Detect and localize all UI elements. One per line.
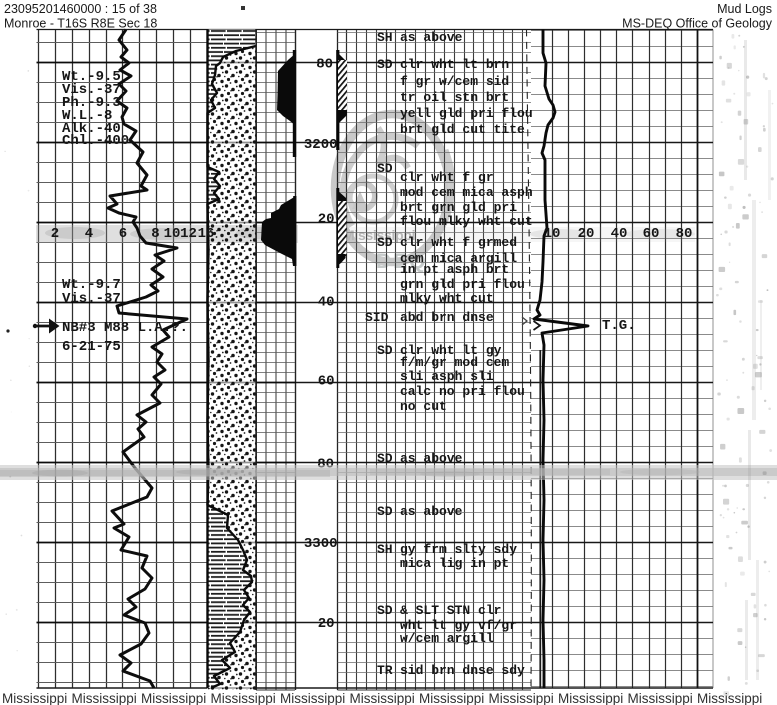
svg-text:& SLT STN clr: & SLT STN clr	[400, 603, 501, 618]
svg-text:Vis.-37: Vis.-37	[62, 291, 121, 307]
svg-text:no cut: no cut	[400, 399, 447, 414]
svg-text:SD: SD	[377, 504, 393, 519]
svg-text:T.G.: T.G.	[602, 318, 636, 334]
svg-text:20: 20	[318, 212, 335, 228]
svg-text:60: 60	[318, 374, 335, 390]
svg-text:6-21-75: 6-21-75	[62, 339, 121, 355]
svg-text:2: 2	[51, 226, 59, 242]
svg-text:80: 80	[676, 226, 693, 242]
svg-text:60: 60	[643, 226, 660, 242]
svg-text:brt grn gld pri: brt grn gld pri	[400, 200, 517, 215]
svg-text:mlky wht cut: mlky wht cut	[400, 291, 494, 306]
svg-text:SD: SD	[377, 343, 393, 358]
svg-text:Mississippi: Mississippi	[280, 691, 345, 705]
svg-text:SD: SD	[377, 451, 393, 466]
svg-text:calc no pri flou: calc no pri flou	[400, 384, 525, 399]
svg-text:Monroe - T16S R8E Sec 18: Monroe - T16S R8E Sec 18	[4, 17, 157, 31]
svg-text:Mississippi: Mississippi	[211, 691, 276, 705]
svg-text:f gr w/cem sid: f gr w/cem sid	[400, 74, 509, 89]
svg-text:Mississippi: Mississippi	[419, 691, 484, 705]
svg-text:Mississippi: Mississippi	[72, 691, 137, 705]
svg-text:mica lig in pt: mica lig in pt	[400, 556, 509, 571]
svg-text:sli asph sli: sli asph sli	[400, 369, 494, 384]
svg-text:SD: SD	[377, 161, 393, 176]
svg-text:as above: as above	[400, 30, 463, 45]
svg-text:sid brn dnse sdy: sid brn dnse sdy	[400, 663, 525, 678]
svg-text:Mud Logs: Mud Logs	[717, 2, 772, 16]
svg-text:mod cem mica asph: mod cem mica asph	[400, 185, 533, 200]
svg-text:Mississippi: Mississippi	[350, 691, 415, 705]
svg-text:as above: as above	[400, 451, 463, 466]
svg-text:MS-DEQ Office of Geology: MS-DEQ Office of Geology	[622, 17, 773, 31]
svg-text:Mississippi: Mississippi	[141, 691, 206, 705]
svg-text:Mississippi: Mississippi	[628, 691, 693, 705]
svg-text:NB#3 M88 L.A.?.: NB#3 M88 L.A.?.	[62, 320, 188, 336]
svg-text:f/m/gr mod cem: f/m/gr mod cem	[400, 355, 509, 370]
svg-text:10: 10	[544, 226, 561, 242]
svg-text:20: 20	[578, 226, 595, 242]
svg-text:Mississippi: Mississippi	[2, 691, 67, 705]
svg-text:Mississippi: Mississippi	[697, 691, 762, 705]
svg-text:SD: SD	[377, 57, 393, 72]
svg-text:12: 12	[180, 226, 197, 242]
svg-text:40: 40	[318, 295, 335, 311]
svg-text:clr wht lt brn: clr wht lt brn	[400, 57, 509, 72]
svg-text:SH: SH	[377, 542, 393, 557]
svg-text:Mississippi: Mississippi	[558, 691, 623, 705]
svg-text:23095201460000 : 15 of 38: 23095201460000 : 15 of 38	[4, 2, 157, 16]
svg-text:abd brn dnse: abd brn dnse	[400, 310, 494, 325]
svg-text:clr wht f gr: clr wht f gr	[400, 170, 494, 185]
svg-text:SD: SD	[377, 235, 393, 250]
svg-text:8: 8	[151, 226, 159, 242]
svg-text:Mississippi: Mississippi	[489, 691, 554, 705]
svg-text:SD: SD	[377, 603, 393, 618]
svg-text:80: 80	[316, 57, 333, 73]
svg-text:6: 6	[119, 226, 127, 242]
svg-text:gy frm slty sdy: gy frm slty sdy	[400, 542, 517, 557]
svg-text:10: 10	[164, 226, 181, 242]
svg-text:TR: TR	[377, 663, 393, 678]
svg-text:as above: as above	[400, 504, 463, 519]
svg-text:3300: 3300	[304, 536, 338, 552]
svg-text:yell gld pri flou: yell gld pri flou	[400, 106, 533, 121]
svg-text:20: 20	[318, 616, 335, 632]
svg-text:3200: 3200	[304, 137, 338, 153]
svg-text:brt gld cut tite: brt gld cut tite	[400, 122, 525, 137]
svg-text:SH: SH	[377, 30, 393, 45]
svg-text:grn gld pri flou: grn gld pri flou	[400, 277, 525, 292]
svg-text:tr oil stn brt: tr oil stn brt	[400, 90, 509, 105]
svg-text:Chl.-400: Chl.-400	[62, 133, 129, 149]
svg-text:clr wht f grmed: clr wht f grmed	[400, 235, 517, 250]
svg-text:4: 4	[85, 226, 93, 242]
svg-text:in pt asph brt: in pt asph brt	[400, 262, 509, 277]
svg-text:16: 16	[198, 226, 215, 242]
svg-text:w/cem argill: w/cem argill	[400, 631, 494, 646]
svg-text:40: 40	[611, 226, 628, 242]
svg-text:flou mlky wht cut: flou mlky wht cut	[400, 214, 533, 229]
svg-text:SID: SID	[365, 310, 389, 325]
